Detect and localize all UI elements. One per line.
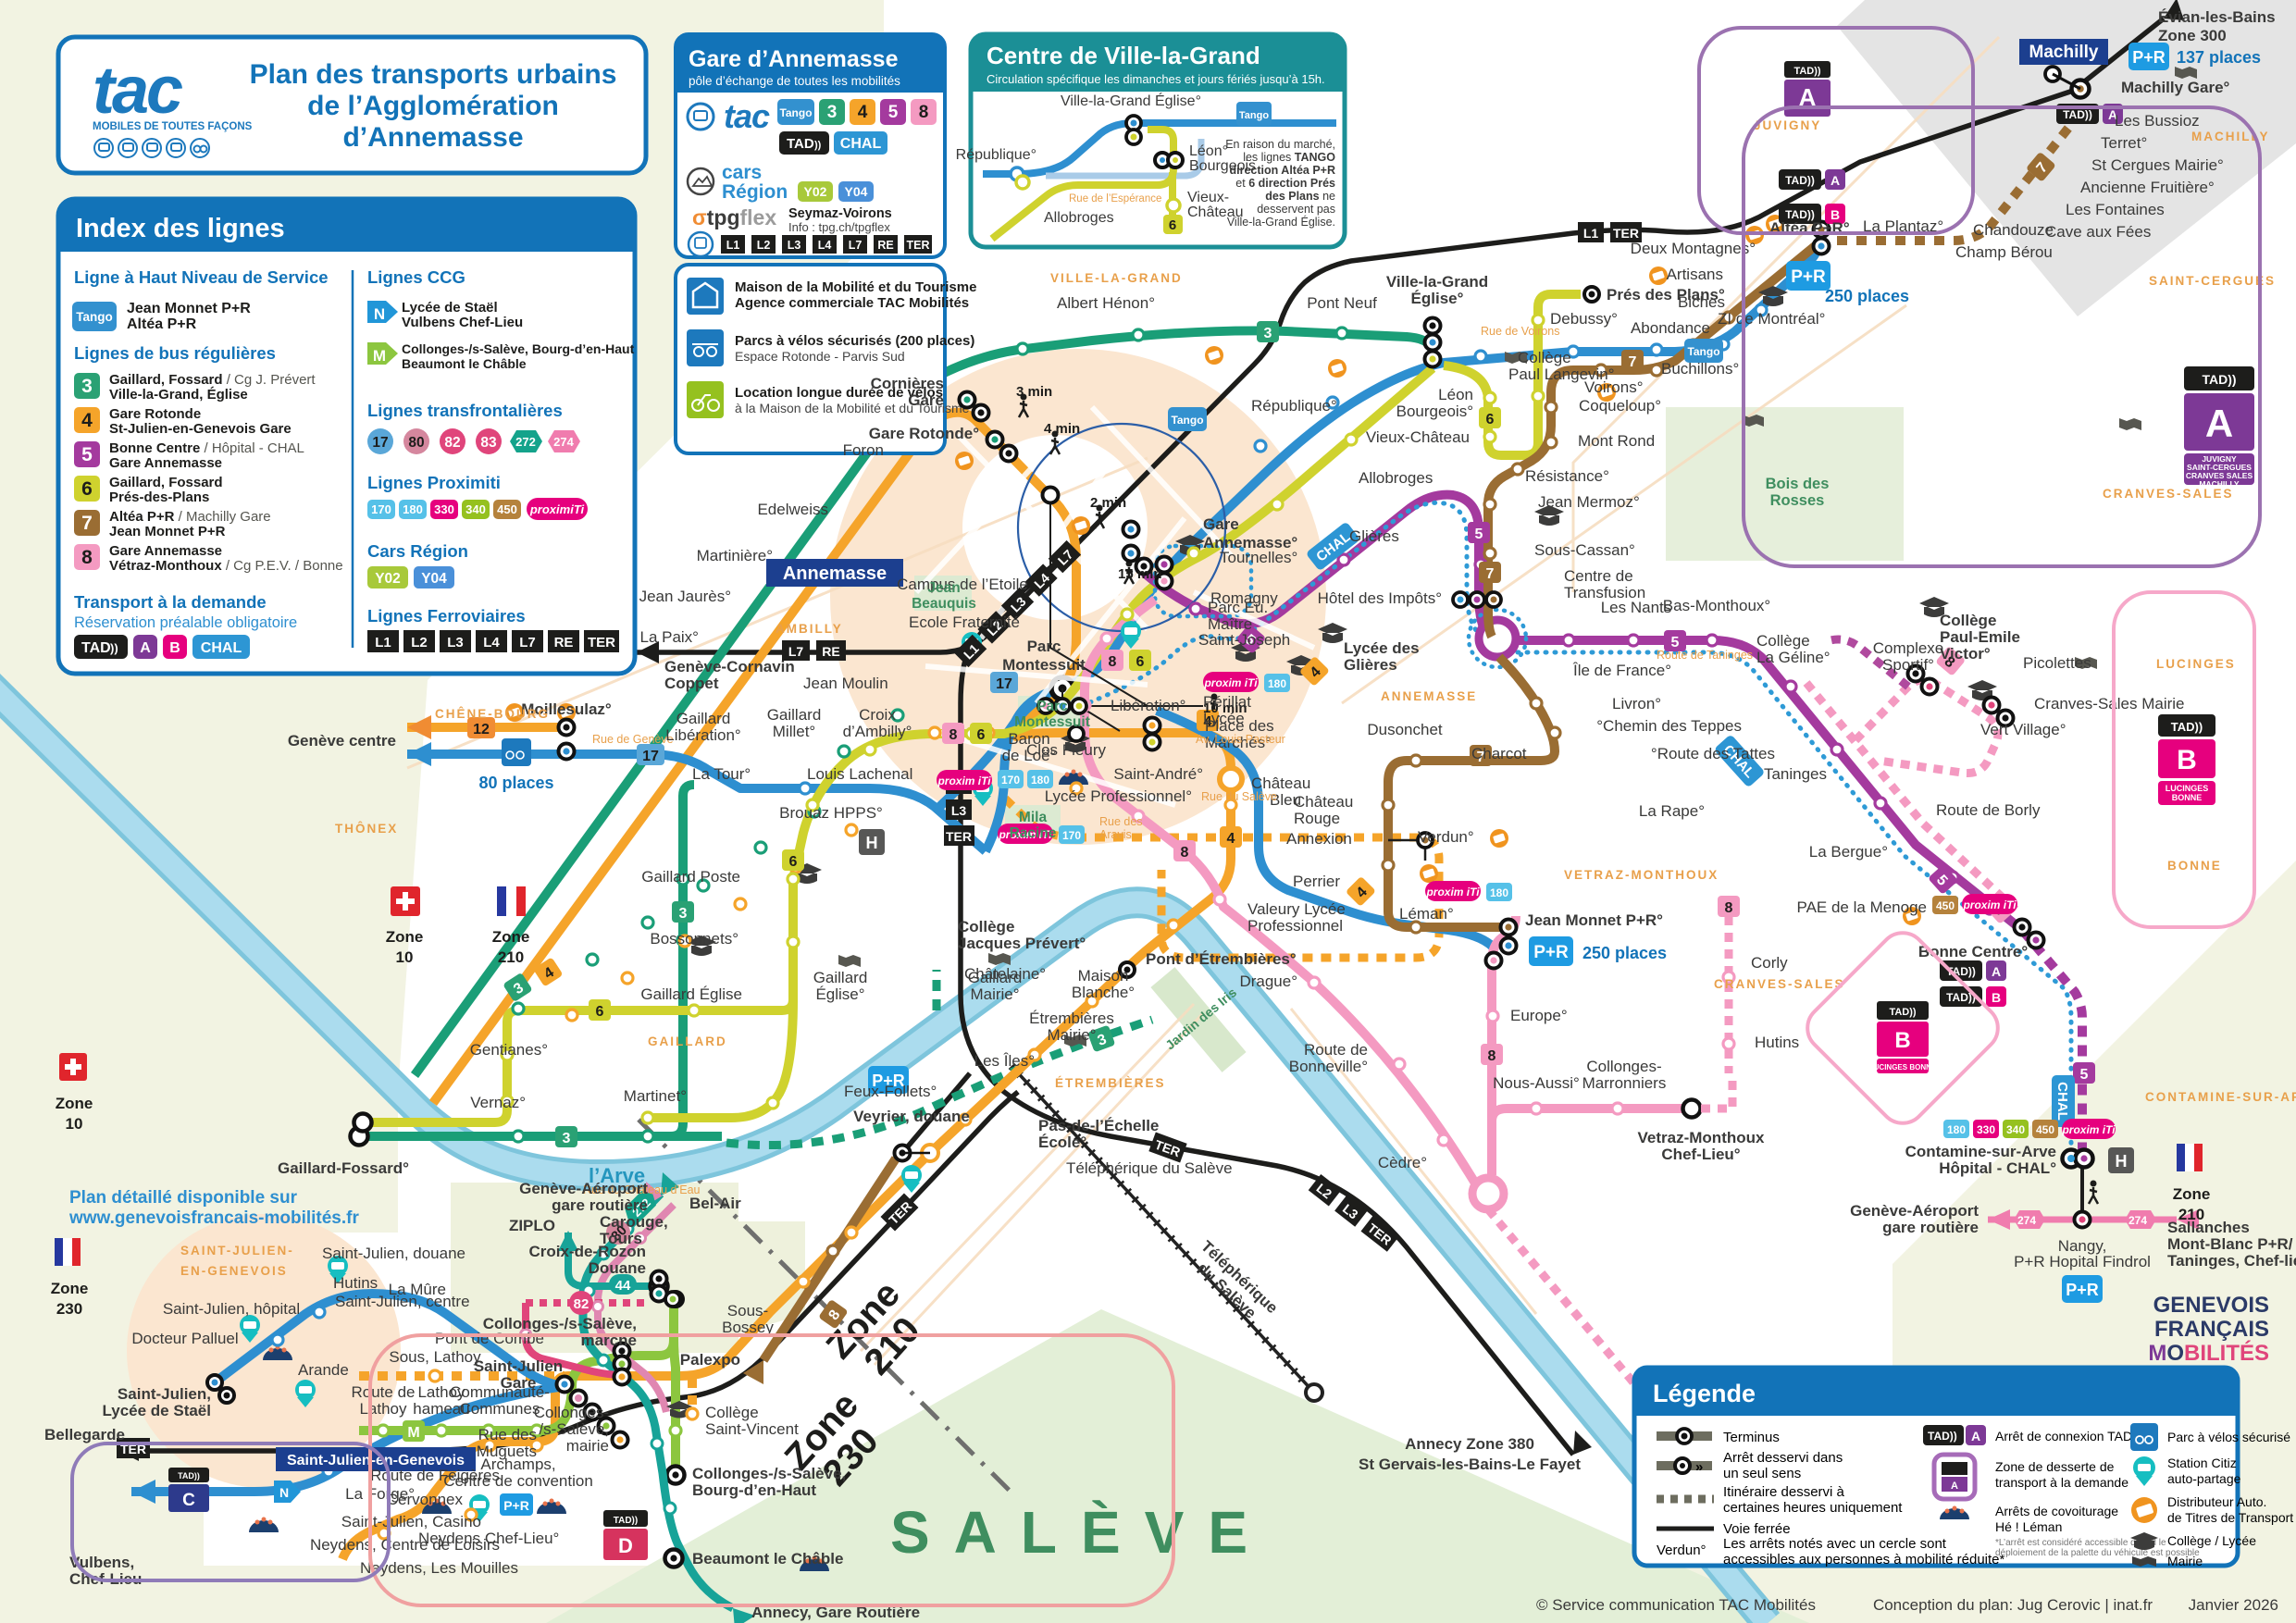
svg-text:Gare Annemasse: Gare Annemasse: [109, 543, 222, 559]
svg-text:EN-GENEVOIS: EN-GENEVOIS: [180, 1264, 288, 1278]
svg-text:Arrêts de covoiturage: Arrêts de covoiturage: [1995, 1504, 2118, 1518]
svg-text:BONNE: BONNE: [2172, 793, 2203, 802]
svg-text:Gaillard Poste: Gaillard Poste: [641, 868, 740, 886]
svg-text:82: 82: [574, 1296, 590, 1312]
svg-text:Montessuit: Montessuit: [1014, 714, 1090, 730]
svg-text:Buchillons°: Buchillons°: [1661, 360, 1739, 378]
svg-text:Sous, Lathoy: Sous, Lathoy: [389, 1348, 481, 1366]
svg-text:Saint-Julien, douane: Saint-Julien, douane: [322, 1245, 465, 1262]
svg-text:Plan des transports urbains: Plan des transports urbains: [250, 59, 617, 90]
svg-text:Lycée: Lycée: [1203, 710, 1245, 727]
svg-text:Lignes de bus régulières: Lignes de bus régulières: [74, 343, 276, 363]
svg-text:B: B: [2177, 745, 2197, 775]
svg-text:Saint-Julien, hôpital: Saint-Julien, hôpital: [163, 1300, 300, 1318]
svg-text:6: 6: [81, 478, 93, 500]
svg-text:Perrier: Perrier: [1293, 873, 1340, 890]
svg-text:Campus de l’Etoile: Campus de l’Etoile: [897, 576, 1028, 593]
svg-text:Zone: Zone: [56, 1095, 93, 1112]
svg-text:Tango: Tango: [779, 106, 812, 119]
svg-text:Sportif°: Sportif°: [1882, 656, 1934, 674]
svg-text:L1: L1: [1583, 226, 1599, 241]
svg-text:MOBILITÉS: MOBILITÉS: [2148, 1340, 2269, 1366]
svg-text:5: 5: [1475, 527, 1483, 542]
svg-text:Picolettes: Picolettes: [2023, 654, 2091, 672]
svg-text:P+R Hopital Findrol: P+R Hopital Findrol: [2014, 1253, 2151, 1270]
svg-text:direction Altéa P+R: direction Altéa P+R: [1230, 164, 1336, 177]
svg-text:Drague°: Drague°: [1239, 973, 1297, 990]
svg-text:Terminus: Terminus: [1723, 1430, 1780, 1445]
svg-text:Blanche°: Blanche°: [1072, 984, 1135, 1001]
svg-text:VETRAZ-MONTHOUX: VETRAZ-MONTHOUX: [1564, 868, 1719, 882]
svg-text:Vulbens Chef-Lieu: Vulbens Chef-Lieu: [402, 315, 523, 330]
svg-text:TAD)): TAD)): [2063, 108, 2092, 121]
svg-text:Gaillard: Gaillard: [676, 710, 731, 727]
svg-text:Mairie°: Mairie°: [1047, 1026, 1096, 1044]
svg-text:GENEVOIS: GENEVOIS: [2153, 1293, 2269, 1318]
svg-text:Collonges-/s-Salève,: Collonges-/s-Salève,: [692, 1465, 846, 1482]
svg-text:Église°: Église°: [815, 985, 864, 1003]
svg-text:Genève-Aéroport: Genève-Aéroport: [1850, 1202, 1979, 1220]
svg-text:Valeury Lycée: Valeury Lycée: [1247, 900, 1346, 918]
svg-text:Maison de la Mobilité et du To: Maison de la Mobilité et du Tourisme: [735, 279, 976, 295]
svg-text:Station Citiz: Station Citiz: [2167, 1456, 2237, 1470]
svg-text:8: 8: [949, 727, 958, 743]
svg-text:La Forge°: La Forge°: [345, 1485, 415, 1503]
svg-text:Genève-Aéroport: Genève-Aéroport: [519, 1180, 648, 1197]
svg-text:MOBILES DE TOUTES FAÇONS: MOBILES DE TOUTES FAÇONS: [93, 121, 253, 132]
svg-text:Chandouze: Chandouze: [1973, 221, 2054, 239]
svg-text:Parc: Parc: [1027, 638, 1061, 655]
svg-text:Bas-Monthoux°: Bas-Monthoux°: [1663, 597, 1770, 614]
svg-text:proxim iTi: proxim iTi: [1962, 898, 2017, 911]
svg-text:Communes: Communes: [460, 1400, 540, 1418]
svg-text:Parc Eu.: Parc Eu.: [1208, 599, 1268, 616]
svg-text:17: 17: [372, 435, 388, 451]
svg-text:Rue des: Rue des: [478, 1426, 537, 1443]
svg-text:Chef-Lieu°: Chef-Lieu°: [1661, 1146, 1740, 1163]
svg-text:Tango: Tango: [76, 310, 113, 324]
svg-text:ÉTREMBIÈRES: ÉTREMBIÈRES: [1055, 1076, 1166, 1090]
svg-text:Communauté-: Communauté-: [450, 1383, 550, 1401]
svg-text:TER: TER: [907, 239, 930, 252]
svg-text:Gentianes°: Gentianes°: [470, 1041, 548, 1059]
svg-text:Pas-de-l’Échelle: Pas-de-l’Échelle: [1038, 1117, 1159, 1134]
svg-text:Les Nants: Les Nants: [1601, 599, 1672, 616]
svg-text:83: 83: [480, 435, 497, 451]
svg-text:Ligne à Haut Niveau de Service: Ligne à Haut Niveau de Service: [74, 267, 329, 287]
svg-text:Taninges: Taninges: [1764, 765, 1827, 783]
svg-text:L4: L4: [483, 635, 500, 650]
svg-text:BONNE: BONNE: [2167, 859, 2222, 873]
svg-text:6: 6: [1169, 217, 1176, 233]
svg-text:Seymaz-Voirons: Seymaz-Voirons: [788, 206, 892, 221]
svg-text:P+R: P+R: [503, 1498, 529, 1513]
svg-text:gare routière: gare routière: [1882, 1219, 1979, 1236]
svg-text:Foron: Foron: [843, 441, 884, 459]
svg-text:Circulation spécifique les dim: Circulation spécifique les dimanches et …: [987, 72, 1325, 86]
svg-text:Montessuit: Montessuit: [1002, 656, 1086, 674]
svg-text:Gare d’Annemasse: Gare d’Annemasse: [689, 46, 899, 72]
svg-text:3: 3: [679, 906, 688, 922]
svg-text:Neydens Chef-Lieu°: Neydens Chef-Lieu°: [418, 1530, 559, 1547]
svg-text:Gaillard-Fossard°: Gaillard-Fossard°: [278, 1159, 409, 1177]
svg-text:C: C: [182, 1491, 195, 1510]
svg-text:auto-partage: auto-partage: [2167, 1471, 2241, 1486]
svg-text:Veyrier, douane: Veyrier, douane: [853, 1108, 970, 1125]
svg-text:6: 6: [789, 854, 798, 870]
svg-text:Église°: Église°: [1411, 290, 1464, 307]
svg-text:Résistance°: Résistance°: [1525, 467, 1609, 485]
svg-text:Annemasse°: Annemasse°: [1203, 534, 1297, 551]
svg-text:Vieux-Château: Vieux-Château: [1366, 428, 1470, 446]
svg-text:4: 4: [858, 103, 868, 122]
svg-text:L1: L1: [726, 239, 740, 252]
svg-text:Arrêt de connexion TAD: Arrêt de connexion TAD: [1995, 1429, 2132, 1443]
svg-text:TAD)): TAD)): [1793, 66, 1820, 77]
svg-text:°Route des Tattes: °Route des Tattes: [1651, 745, 1775, 762]
svg-text:Voie ferrée: Voie ferrée: [1723, 1521, 1791, 1537]
svg-text:CONTAMINE-SUR-ARVE: CONTAMINE-SUR-ARVE: [2145, 1090, 2296, 1104]
svg-text:TAD: TAD: [787, 136, 814, 152]
svg-text:170: 170: [1062, 829, 1081, 842]
svg-text:8: 8: [1109, 654, 1117, 670]
svg-text:Aravis: Aravis: [1099, 828, 1132, 841]
svg-text:proxim iTi: proxim iTi: [1425, 886, 1480, 898]
svg-text:Collonges-/s-Salève, Bourg-d’e: Collonges-/s-Salève, Bourg-d’en-Haut: [402, 341, 635, 356]
svg-text:Mairie°: Mairie°: [970, 985, 1019, 1003]
svg-text:THÔNEX: THÔNEX: [335, 822, 398, 836]
svg-text:Louis Lachenal: Louis Lachenal: [807, 765, 912, 783]
svg-text:Lignes Ferroviaires: Lignes Ferroviaires: [367, 606, 526, 626]
svg-text:Racine: Racine: [1010, 825, 1057, 841]
svg-text:Hutins: Hutins: [1755, 1034, 1799, 1051]
svg-text:Légende: Légende: [1653, 1380, 1756, 1407]
svg-text:Plan détaillé disponible sur: Plan détaillé disponible sur: [69, 1188, 298, 1208]
svg-text:Ancienne Fruitière°: Ancienne Fruitière°: [2080, 179, 2215, 196]
svg-text:Abondance: Abondance: [1631, 319, 1710, 337]
svg-text:Vert Village°: Vert Village°: [1980, 721, 2066, 738]
svg-text:Rouge: Rouge: [1294, 810, 1340, 827]
svg-text:Lycée de Staël: Lycée de Staël: [103, 1402, 212, 1419]
svg-text:accessibles aux personnes à mo: accessibles aux personnes à mobilité réd…: [1723, 1552, 2004, 1567]
svg-text:Lycée de Staël: Lycée de Staël: [402, 300, 498, 316]
svg-text:Ville-la-Grand, Église: Ville-la-Grand, Église: [109, 387, 248, 403]
svg-text:Feux-Follets°: Feux-Follets°: [844, 1083, 937, 1100]
svg-text:St Cergues Mairie°: St Cergues Mairie°: [2091, 156, 2224, 174]
svg-text:Rue de l’Espérance: Rue de l’Espérance: [1069, 193, 1161, 204]
svg-text:Champ Bérou: Champ Bérou: [1955, 243, 2053, 261]
svg-text:Saint-Julien,: Saint-Julien,: [118, 1385, 211, 1403]
svg-text:La Géline°: La Géline°: [1756, 649, 1831, 666]
svg-text:5: 5: [888, 103, 899, 122]
svg-text:Allobroges: Allobroges: [1359, 469, 1433, 487]
svg-text:TAD)): TAD)): [614, 1516, 638, 1526]
svg-text:Maître: Maître: [1208, 615, 1252, 633]
svg-text:5: 5: [2080, 1067, 2089, 1083]
svg-text:Paul-Emile: Paul-Emile: [1940, 628, 2020, 646]
svg-text:Terret°: Terret°: [2101, 134, 2147, 152]
svg-text:6: 6: [1486, 412, 1495, 427]
svg-text:desservent pas: desservent pas: [1257, 203, 1335, 216]
svg-text:Rue de Voirons: Rue de Voirons: [1481, 325, 1559, 338]
svg-text:Gaillard Église: Gaillard Église: [640, 985, 742, 1003]
svg-text:Verdun°: Verdun°: [1657, 1542, 1706, 1558]
svg-text:RE: RE: [822, 644, 839, 659]
svg-text:Victor°: Victor°: [1940, 645, 1991, 663]
svg-text:180: 180: [1490, 886, 1508, 899]
svg-text:A: A: [2205, 402, 2233, 445]
svg-text:mairie: mairie: [566, 1437, 609, 1455]
svg-text:Saint-Joseph: Saint-Joseph: [1198, 631, 1290, 649]
svg-text:Croix: Croix: [859, 706, 896, 724]
svg-text:Lathoy: Lathoy: [359, 1400, 407, 1418]
svg-text:P+R: P+R: [2132, 48, 2166, 67]
svg-text:340: 340: [465, 502, 486, 516]
svg-text:GAILLARD: GAILLARD: [648, 1035, 727, 1048]
svg-text:10: 10: [396, 948, 414, 966]
svg-text:8: 8: [1181, 845, 1189, 861]
svg-text:des Plans ne: des Plans ne: [1265, 190, 1335, 203]
svg-text:Jean Mermoz°: Jean Mermoz°: [1538, 493, 1640, 511]
svg-text:SALÈVE: SALÈVE: [890, 1499, 1272, 1566]
svg-text:Collonges-: Collonges-: [1586, 1058, 1661, 1075]
svg-text:ANNEMASSE: ANNEMASSE: [1381, 689, 1477, 703]
svg-text:Zone: Zone: [492, 928, 530, 946]
svg-text:Millet°: Millet°: [773, 723, 815, 740]
svg-text:et 6 direction Prés: et 6 direction Prés: [1235, 177, 1335, 190]
svg-text:TAD)): TAD)): [1785, 174, 1815, 187]
svg-text:LUCINGES BONNE: LUCINGES BONNE: [1869, 1063, 1937, 1072]
svg-text:Léon: Léon: [1438, 386, 1473, 403]
svg-text:CRANVES-SALES: CRANVES-SALES: [1714, 977, 1845, 991]
svg-text:Évian-les-Bains: Évian-les-Bains: [2158, 8, 2276, 26]
svg-text:Dusonchet: Dusonchet: [1367, 721, 1443, 738]
svg-text:République°: République°: [956, 147, 1036, 163]
svg-text:Saint-Vincent: Saint-Vincent: [705, 1420, 799, 1438]
svg-text:Réservation préalable obligato: Réservation préalable obligatoire: [74, 614, 297, 631]
svg-text:450: 450: [1936, 899, 1955, 912]
svg-text:210: 210: [2178, 1206, 2204, 1223]
svg-text:450: 450: [2036, 1123, 2054, 1136]
svg-text:St Gervais-les-Bains-Le Fayet: St Gervais-les-Bains-Le Fayet: [1359, 1456, 1581, 1473]
svg-text:Vieux-: Vieux-: [1187, 190, 1229, 205]
svg-text:170: 170: [371, 502, 391, 516]
svg-text:Albert Hénon°: Albert Hénon°: [1057, 294, 1155, 312]
svg-text:A: A: [1992, 964, 2001, 979]
svg-text:Docteur Palluel: Docteur Palluel: [131, 1330, 238, 1347]
svg-text:Edelweiss: Edelweiss: [757, 501, 828, 518]
svg-text:Parc à vélos sécurisé: Parc à vélos sécurisé: [2167, 1430, 2290, 1444]
svg-text:TAD)): TAD)): [178, 1471, 200, 1481]
svg-text:Zone: Zone: [386, 928, 424, 946]
svg-text:SAINT-JULIEN-: SAINT-JULIEN-: [180, 1244, 294, 1258]
svg-text:SAINT-CERGUES: SAINT-CERGUES: [2149, 274, 2276, 288]
svg-text:N: N: [279, 1485, 289, 1500]
svg-text:Bellegarde: Bellegarde: [44, 1426, 125, 1443]
svg-text:Jean Jaurès°: Jean Jaurès°: [639, 588, 731, 605]
svg-text:Espace Rotonde - Parvis Sud: Espace Rotonde - Parvis Sud: [735, 349, 905, 364]
svg-text:15 min: 15 min: [1118, 566, 1162, 582]
svg-text:Brouaz HPPS°: Brouaz HPPS°: [779, 804, 883, 822]
svg-text:CRANVES-SALES: CRANVES-SALES: [2103, 487, 2234, 501]
svg-text:Hutins: Hutins: [333, 1274, 378, 1292]
svg-text:Saint-Julien: Saint-Julien: [474, 1357, 563, 1375]
svg-text:Corly: Corly: [1751, 954, 1788, 972]
svg-text:CHAL: CHAL: [840, 136, 882, 152]
svg-text:cars: cars: [722, 162, 762, 183]
svg-text:Route de Taninges: Route de Taninges: [1657, 649, 1753, 662]
svg-text:B: B: [169, 640, 180, 656]
svg-text:2 min: 2 min: [1090, 495, 1126, 511]
svg-text:Janvier 2026: Janvier 2026: [2189, 1596, 2278, 1614]
svg-text:274: 274: [2017, 1214, 2036, 1227]
svg-text:d’Annemasse: d’Annemasse: [342, 122, 523, 153]
svg-text:8: 8: [1725, 900, 1733, 916]
svg-text:gare routière: gare routière: [552, 1196, 648, 1214]
svg-text:170: 170: [1001, 774, 1020, 787]
svg-text:Collège: Collège: [958, 918, 1014, 935]
svg-text:Taninges, Chef-lieu: Taninges, Chef-lieu: [2167, 1252, 2296, 1270]
svg-text:PAE de la Menoge: PAE de la Menoge: [1797, 898, 1928, 916]
svg-text:80 places: 80 places: [478, 774, 553, 792]
svg-text:Gaillard, Fossard: Gaillard, Fossard: [109, 475, 223, 490]
svg-text:P+R: P+R: [1533, 943, 1569, 962]
svg-text:Glières: Glières: [1349, 527, 1399, 545]
svg-text:tac: tac: [93, 54, 182, 128]
svg-text:TAD)): TAD)): [1928, 1430, 1957, 1443]
svg-text:Cars Région: Cars Région: [367, 541, 468, 561]
svg-text:Rosses: Rosses: [1770, 492, 1825, 509]
svg-text:Bourg-d’en-Haut: Bourg-d’en-Haut: [692, 1481, 816, 1499]
svg-text:Jean Monnet P+R: Jean Monnet P+R: [109, 524, 226, 539]
svg-text:Cave aux Fées: Cave aux Fées: [2045, 223, 2151, 241]
svg-text:Martinière°: Martinière°: [697, 547, 773, 564]
svg-text:Carouge,: Carouge,: [600, 1213, 668, 1231]
svg-text:TER: TER: [946, 829, 972, 844]
svg-text:Léon°: Léon°: [1189, 143, 1228, 159]
svg-text:Beaumont le Châble: Beaumont le Châble: [402, 356, 527, 371]
svg-text:Libération°: Libération°: [665, 726, 740, 744]
svg-text:St-Julien-en-Genevois Gare: St-Julien-en-Genevois Gare: [109, 421, 292, 437]
svg-text:Arrêt desservi dans: Arrêt desservi dans: [1723, 1450, 1843, 1466]
svg-text:CHAL: CHAL: [201, 640, 242, 656]
svg-text:Gare Rotonde°: Gare Rotonde°: [869, 425, 979, 442]
svg-text:Jacques Prévert°: Jacques Prévert°: [958, 935, 1086, 952]
svg-text:CHAL: CHAL: [2054, 1082, 2070, 1121]
svg-text:Genève centre: Genève centre: [288, 732, 396, 750]
svg-text:La Paix°: La Paix°: [639, 628, 699, 646]
svg-text:Parc: Parc: [1036, 699, 1068, 714]
svg-text:Téléphérique du Salève: Téléphérique du Salève: [1066, 1159, 1233, 1177]
svg-text:250 places: 250 places: [1825, 287, 1909, 305]
svg-text:M: M: [373, 347, 386, 365]
svg-text:Collège: Collège: [705, 1404, 759, 1421]
svg-text:B: B: [1894, 1028, 1910, 1053]
svg-text:FRANÇAIS: FRANÇAIS: [2154, 1317, 2269, 1342]
svg-text:Les arrêts notés avec un cercl: Les arrêts notés avec un cercle sont: [1723, 1536, 1947, 1552]
svg-text:Collège: Collège: [1756, 632, 1810, 650]
svg-text:Debussy°: Debussy°: [1550, 310, 1618, 328]
svg-text:Cèdre°: Cèdre°: [1378, 1154, 1427, 1171]
svg-text:Genève-Cornavin: Genève-Cornavin: [664, 658, 795, 675]
svg-text:Mila: Mila: [1019, 810, 1048, 825]
svg-text:σtpgflex: σtpgflex: [692, 205, 776, 229]
svg-text:École°: École°: [1038, 1134, 1086, 1151]
svg-text:Europe°: Europe°: [1510, 1007, 1568, 1024]
svg-text:Index des lignes: Index des lignes: [76, 214, 285, 243]
svg-text:Archamps,: Archamps,: [480, 1456, 555, 1473]
svg-text:Altéa P+R: Altéa P+R: [127, 316, 197, 332]
svg-text:Collège: Collège: [1518, 349, 1571, 366]
svg-text:ZI de Montréal°: ZI de Montréal°: [1718, 310, 1825, 328]
svg-text:La Bergue°: La Bergue°: [1809, 843, 1888, 861]
svg-text:/s-Salève,: /s-Salève,: [539, 1420, 609, 1438]
svg-text:Cranves-Sales Mairie: Cranves-Sales Mairie: [2034, 695, 2185, 712]
svg-text:10: 10: [66, 1115, 83, 1133]
svg-text:Machilly Gare°: Machilly Gare°: [2121, 79, 2230, 96]
svg-text:3: 3: [827, 103, 838, 122]
svg-text:Parcs à vélos sécurisés (200 p: Parcs à vélos sécurisés (200 places): [735, 333, 974, 349]
svg-text:Mont Rond: Mont Rond: [1578, 432, 1655, 450]
svg-text:La Mûre: La Mûre: [389, 1281, 446, 1298]
svg-text:VILLE-LA-GRAND: VILLE-LA-GRAND: [1050, 271, 1183, 285]
svg-text:transport à la demande: transport à la demande: [1995, 1475, 2128, 1490]
svg-text:Bossonnets°: Bossonnets°: [650, 930, 738, 948]
svg-text:AMBILLY: AMBILLY: [776, 622, 843, 636]
svg-text:82: 82: [444, 435, 460, 451]
svg-text:L3: L3: [447, 635, 464, 650]
svg-text:Léman°: Léman°: [1399, 905, 1454, 923]
svg-text:Verdun°: Verdun°: [1418, 828, 1474, 846]
svg-text:340: 340: [2006, 1123, 2025, 1136]
svg-text:Collège: Collège: [1940, 612, 1996, 629]
svg-text:L7: L7: [788, 644, 804, 659]
svg-text:4: 4: [1227, 831, 1235, 847]
svg-text:proximiTi: proximiTi: [529, 502, 585, 516]
svg-text:Rue des: Rue des: [1099, 815, 1143, 828]
svg-text:L4: L4: [818, 239, 832, 252]
svg-text:7: 7: [1486, 566, 1495, 582]
svg-text:137 places: 137 places: [2177, 48, 2261, 67]
svg-text:Les Îles°: Les Îles°: [974, 1052, 1035, 1070]
svg-text:de l’Agglomération: de l’Agglomération: [307, 91, 559, 121]
svg-text:12: 12: [473, 722, 490, 737]
svg-text:Les Fontaines: Les Fontaines: [2066, 201, 2165, 218]
svg-text:8: 8: [919, 103, 929, 122]
svg-text:Ville-la-Grand Église.: Ville-la-Grand Église.: [1227, 215, 1335, 229]
svg-text:République°: République°: [1251, 397, 1337, 415]
svg-text:Tours: Tours: [600, 1230, 642, 1247]
svg-text:Contamine-sur-Arve: Contamine-sur-Arve: [1905, 1143, 2056, 1160]
svg-text:Libération°: Libération°: [1111, 697, 1185, 714]
svg-text:Conception du plan: Jug Cerovi: Conception du plan: Jug Cerovic | inat.f…: [1873, 1596, 2153, 1614]
svg-text:Hé ! Léman: Hé ! Léman: [1995, 1519, 2062, 1534]
svg-text:Maison: Maison: [1078, 967, 1129, 985]
svg-text:pôle d’échange de toutes les m: pôle d’échange de toutes les mobilités: [689, 74, 900, 88]
svg-text:D: D: [618, 1534, 633, 1557]
svg-text:proxim iTi: proxim iTi: [2061, 1123, 2116, 1136]
svg-text:Zone 300: Zone 300: [2158, 27, 2227, 44]
svg-text:N: N: [374, 305, 385, 323]
svg-text:L2: L2: [757, 239, 771, 252]
svg-text:Hôtel des Impôts°: Hôtel des Impôts°: [1318, 589, 1442, 607]
svg-text:CHÊNE-BOURG: CHÊNE-BOURG: [435, 707, 550, 721]
svg-text:A: A: [1831, 173, 1840, 188]
svg-text:6: 6: [977, 727, 986, 743]
svg-text:En raison du marché,: En raison du marché,: [1225, 138, 1335, 151]
svg-text:Pont d’Étrembières°: Pont d’Étrembières°: [1146, 950, 1297, 968]
svg-text:Deux Montagnes°: Deux Montagnes°: [1631, 240, 1756, 257]
